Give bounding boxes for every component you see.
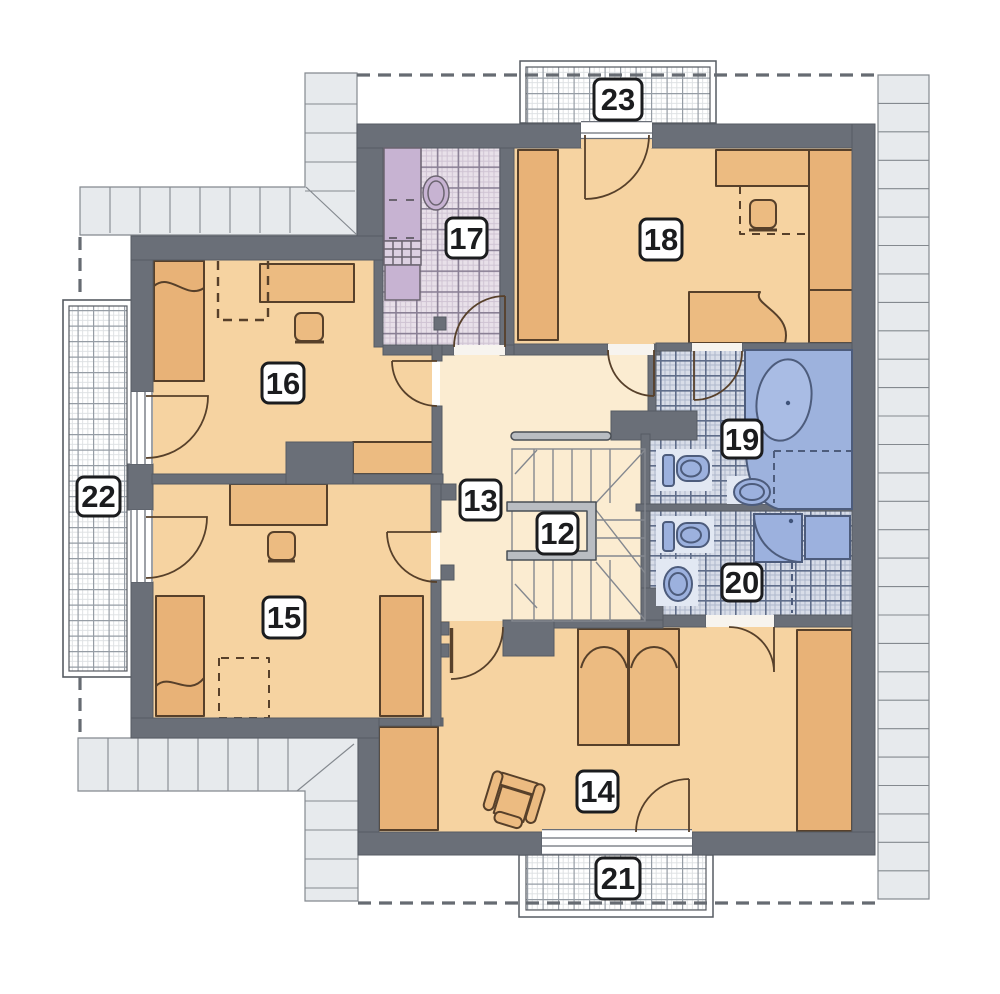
svg-text:13: 13 — [463, 483, 497, 518]
svg-text:19: 19 — [725, 422, 759, 457]
svg-text:21: 21 — [601, 861, 635, 896]
svg-text:20: 20 — [725, 565, 759, 600]
svg-text:23: 23 — [601, 82, 635, 117]
svg-text:14: 14 — [580, 774, 615, 809]
svg-text:17: 17 — [449, 221, 483, 256]
svg-text:12: 12 — [540, 516, 574, 551]
svg-text:22: 22 — [81, 479, 115, 514]
svg-text:15: 15 — [267, 600, 301, 635]
svg-text:16: 16 — [266, 366, 300, 401]
svg-text:18: 18 — [644, 222, 678, 257]
